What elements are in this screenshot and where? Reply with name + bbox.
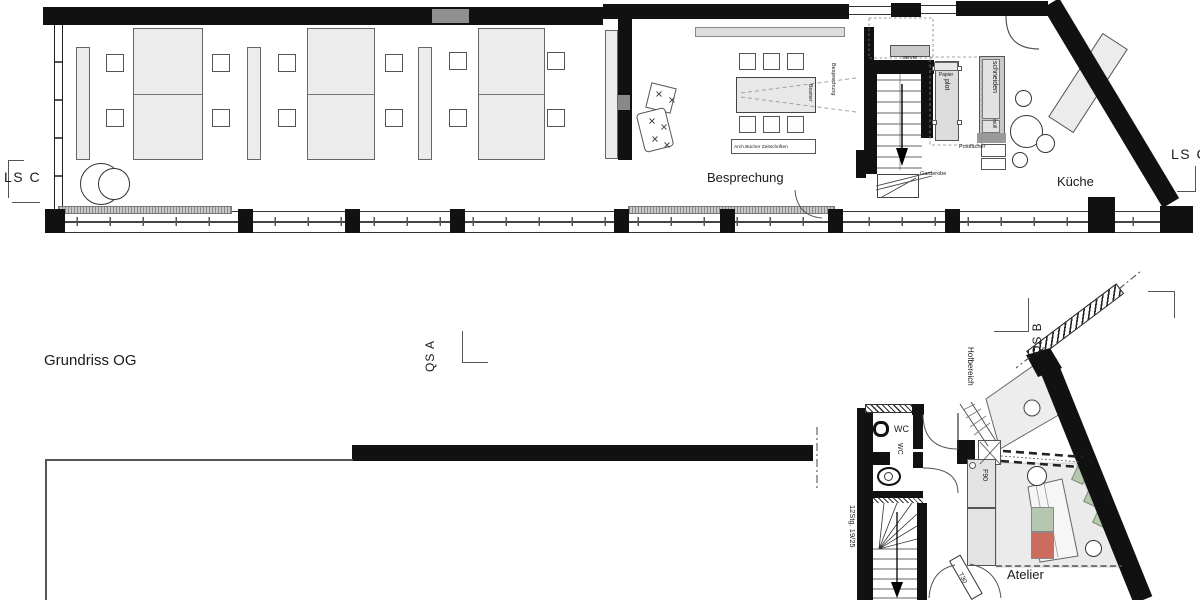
label-muell: müll bbox=[991, 119, 996, 128]
room-label-wc: WC bbox=[894, 425, 909, 434]
room-label-besprechung: Besprechung bbox=[707, 171, 784, 184]
partition-track-1 bbox=[1003, 451, 1083, 457]
lounge-chair-marks bbox=[650, 92, 675, 148]
door-arc-t30-left bbox=[929, 565, 955, 598]
plan-title: Grundriss OG bbox=[44, 353, 137, 368]
door-arc-meeting-exit bbox=[795, 190, 822, 218]
door-arc-hall bbox=[923, 468, 958, 493]
partition-track-2 bbox=[1001, 461, 1079, 467]
label-postfaecher: Postfächer bbox=[959, 145, 985, 151]
label-plot: plot bbox=[943, 79, 950, 90]
label-wc-vertical: WC bbox=[896, 443, 903, 455]
wall-diagonal-lower bbox=[1047, 362, 1143, 600]
door-arc-kitchen bbox=[1006, 16, 1039, 49]
wall-diagonal-upper bbox=[1051, 3, 1171, 203]
stair-arrow-head-lower bbox=[891, 582, 903, 598]
plot-zone-dashed bbox=[930, 57, 982, 145]
section-bar-extension-bottom bbox=[1016, 357, 1030, 368]
courtyard-bridge-hatch bbox=[963, 404, 990, 435]
section-label-qs-a: QS A bbox=[424, 340, 436, 372]
label-garderobe: Garderobe bbox=[920, 172, 946, 178]
overlay-linework bbox=[0, 0, 1200, 600]
label-shelf-books: Arch.Bücher Zeitschriften bbox=[734, 146, 788, 151]
server-zone-dashed bbox=[869, 18, 933, 58]
room-label-kueche: Küche bbox=[1057, 175, 1094, 188]
label-f90: F90 bbox=[981, 469, 988, 481]
courtyard-circle bbox=[1024, 400, 1040, 416]
section-label-ls-right: LS C bbox=[1171, 147, 1200, 161]
section-label-ls-left: LS C bbox=[4, 170, 41, 184]
label-stairs-count: 12Stg. 19/25 bbox=[849, 505, 857, 548]
section-bar-extension-top bbox=[1119, 271, 1141, 289]
door-arc-wc bbox=[923, 414, 958, 449]
room-label-atelier: Atelier bbox=[1007, 568, 1044, 581]
partition-stack-x bbox=[980, 442, 1000, 464]
label-besprechung-vertical: Besprechung bbox=[830, 63, 836, 95]
label-hofbereich: Hofbereich bbox=[966, 347, 974, 386]
floorplan-canvas: server Papier bbox=[0, 0, 1200, 600]
beamer-projection-lines bbox=[741, 78, 856, 112]
section-label-qs-b: QS B bbox=[1031, 322, 1043, 355]
label-schneiden: schneiden bbox=[991, 61, 998, 93]
door-arc-t30-right bbox=[970, 564, 1001, 598]
label-beamer: Beamer bbox=[807, 84, 812, 102]
